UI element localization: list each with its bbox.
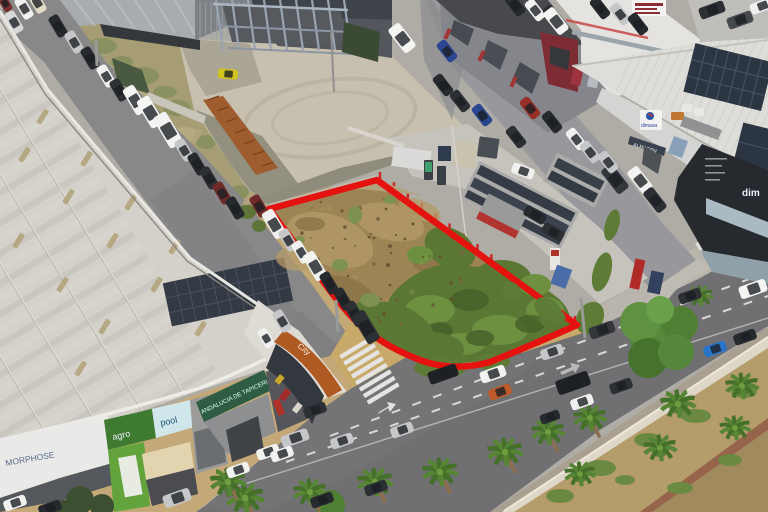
- svg-text:dimasa: dimasa: [641, 123, 657, 129]
- svg-text:dim: dim: [742, 188, 760, 199]
